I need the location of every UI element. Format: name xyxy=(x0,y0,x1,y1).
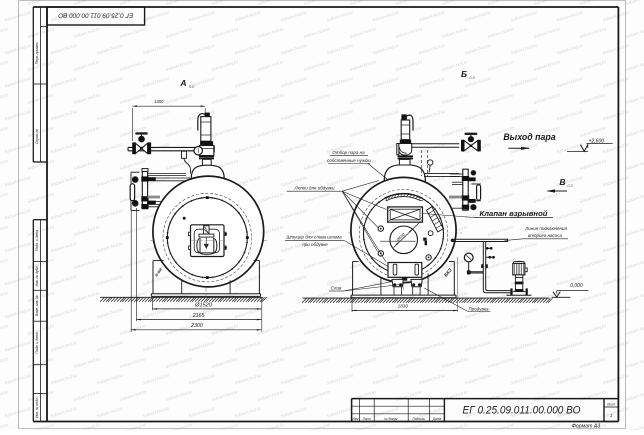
svg-text:В: В xyxy=(559,177,565,187)
svg-text:Выход пара: Выход пара xyxy=(503,132,555,142)
svg-text:(1:1): (1:1) xyxy=(189,85,194,89)
svg-text:Подпись: Подпись xyxy=(412,417,425,421)
svg-text:Подп. и дата: Подп. и дата xyxy=(35,230,39,251)
svg-text:Лист: Лист xyxy=(362,417,372,421)
svg-text:(1:1): (1:1) xyxy=(568,184,573,188)
svg-text:Клапан взрывной: Клапан взрывной xyxy=(480,209,548,218)
svg-text:собственные нужды: собственные нужды xyxy=(327,158,371,163)
svg-text:0,000: 0,000 xyxy=(570,283,583,289)
svg-text:Взам. инв. №: Взам. инв. № xyxy=(35,295,39,316)
svg-text:Линия подключения: Линия подключения xyxy=(524,226,567,231)
svg-text:Штуцер для слива шлама: Штуцер для слива шлама xyxy=(286,234,342,239)
svg-text:2300: 2300 xyxy=(190,323,203,329)
svg-text:Справ. №: Справ. № xyxy=(35,128,39,144)
svg-text:при обдувке: при обдувке xyxy=(302,242,328,247)
svg-text:1830: 1830 xyxy=(398,303,409,308)
svg-text:(1:1): (1:1) xyxy=(470,76,475,80)
svg-text:А: А xyxy=(179,78,186,88)
svg-text:Лист: Лист xyxy=(606,402,616,406)
svg-text:1: 1 xyxy=(610,413,613,418)
svg-text:Ø1520: Ø1520 xyxy=(194,302,213,308)
svg-text:Отбор пара на: Отбор пара на xyxy=(332,150,365,155)
svg-text:№ докум.: № докум. xyxy=(384,417,398,421)
svg-text:Инв. № подл.: Инв. № подл. xyxy=(35,397,39,418)
svg-text:Дата: Дата xyxy=(432,417,442,421)
svg-text:2165: 2165 xyxy=(192,313,205,319)
svg-text:второго насоса: второго насоса xyxy=(528,233,562,238)
svg-text:Изм: Изм xyxy=(353,417,360,421)
svg-text:ЕГ 0.25.09.011.00.000 ВО: ЕГ 0.25.09.011.00.000 ВО xyxy=(463,404,581,416)
svg-text:Подп. и дата: Подп. и дата xyxy=(35,332,39,353)
svg-text:Перв. примен.: Перв. примен. xyxy=(35,42,39,65)
svg-text:Слив: Слив xyxy=(331,286,342,291)
svg-text:Лючки для обдувки: Лючки для обдувки xyxy=(294,185,335,190)
svg-text:Формат А3: Формат А3 xyxy=(572,423,600,429)
svg-text:Инв. № дубл.: Инв. № дубл. xyxy=(35,266,39,287)
svg-text:ЕГ 0.25.09.011.00.000 ВО: ЕГ 0.25.09.011.00.000 ВО xyxy=(58,12,133,19)
svg-text:Б: Б xyxy=(461,69,467,79)
svg-text:Продувка: Продувка xyxy=(469,306,489,311)
svg-text:1300: 1300 xyxy=(154,99,164,104)
